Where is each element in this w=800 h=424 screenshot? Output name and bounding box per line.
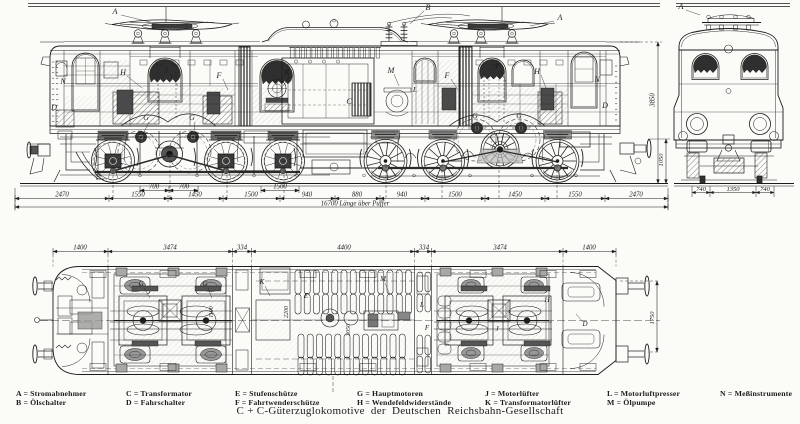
svg-text:3850: 3850 [650, 93, 657, 108]
svg-text:2200: 2200 [284, 306, 290, 318]
svg-text:M: M [387, 66, 396, 75]
svg-text:N: N [59, 77, 66, 86]
svg-text:N: N [593, 75, 600, 84]
svg-text:A: A [557, 13, 563, 22]
svg-text:334: 334 [236, 245, 248, 252]
svg-text:C: C [346, 97, 352, 106]
svg-text:1400: 1400 [582, 245, 596, 252]
svg-text:F: F [424, 324, 430, 332]
svg-text:D: D [601, 101, 608, 110]
svg-text:1100: 1100 [209, 306, 215, 318]
svg-text:A: A [112, 7, 118, 16]
svg-text:J: J [164, 66, 168, 75]
svg-text:1500: 1500 [244, 192, 258, 199]
svg-text:700: 700 [179, 184, 190, 191]
svg-text:2470: 2470 [629, 192, 643, 199]
svg-text:3474: 3474 [492, 245, 507, 252]
svg-text:700: 700 [149, 184, 160, 191]
svg-text:1500: 1500 [448, 192, 462, 199]
svg-text:L: L [419, 301, 424, 309]
svg-text:16700 Länge über Puffer: 16700 Länge über Puffer [321, 201, 390, 208]
svg-text:J: J [494, 62, 498, 71]
svg-text:740: 740 [696, 186, 707, 193]
svg-text:1550: 1550 [568, 192, 582, 199]
svg-text:A: A [678, 2, 684, 11]
svg-text:1550: 1550 [131, 192, 145, 199]
svg-text:1400: 1400 [73, 245, 87, 252]
svg-text:880: 880 [352, 192, 363, 199]
svg-text:B: B [426, 3, 431, 12]
svg-text:F: F [216, 71, 222, 80]
svg-text:1450: 1450 [508, 192, 522, 199]
svg-text:940: 940 [302, 192, 313, 199]
svg-text:940: 940 [397, 192, 408, 199]
svg-text:1450: 1450 [188, 192, 202, 199]
svg-text:4400: 4400 [337, 245, 351, 252]
svg-text:740: 740 [760, 186, 771, 193]
svg-text:1350: 1350 [727, 186, 741, 193]
svg-text:2470: 2470 [55, 192, 69, 199]
svg-text:3050: 3050 [346, 324, 352, 337]
svg-text:1500: 1500 [273, 184, 287, 191]
svg-text:3474: 3474 [162, 245, 177, 252]
svg-text:1750: 1750 [649, 311, 656, 325]
svg-text:K: K [283, 68, 290, 77]
svg-text:1050: 1050 [658, 153, 665, 167]
